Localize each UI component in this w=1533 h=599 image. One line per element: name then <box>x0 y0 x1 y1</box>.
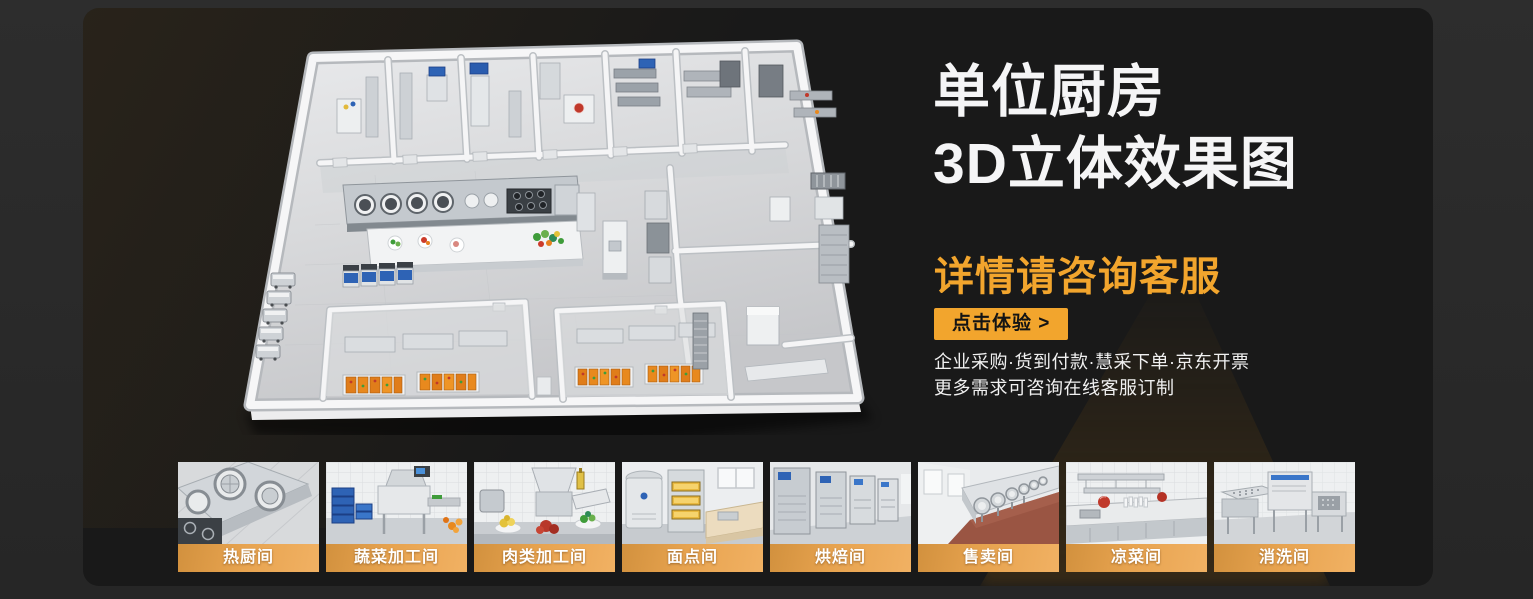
subtitle: 详情请咨询客服 <box>934 244 1221 302</box>
thumbnail-hot-kitchen[interactable]: 热厨间 <box>178 462 319 572</box>
thumbnail-cold-dish-room[interactable]: 凉菜间 <box>1066 462 1207 572</box>
thumb-image-hot-kitchen <box>178 462 319 544</box>
thumbnail-vegetable-processing[interactable]: 蔬菜加工间 <box>326 462 467 572</box>
thumb-image-vegetable-processing <box>326 462 467 544</box>
title-line-1: 单位厨房 <box>933 56 1298 128</box>
thumbnail-label: 蔬菜加工间 <box>326 544 467 572</box>
kitchen-3d-floorplan <box>225 15 885 435</box>
thumbnail-label: 售卖间 <box>918 544 1059 572</box>
cta-button[interactable]: 点击体验 > <box>934 308 1068 340</box>
title-line-2: 3D立体效果图 <box>933 128 1298 200</box>
thumb-image-pastry-room <box>622 462 763 544</box>
thumbnail-label: 凉菜间 <box>1066 544 1207 572</box>
thumb-image-meat-processing <box>474 462 615 544</box>
page-title: 单位厨房 3D立体效果图 <box>933 56 1298 201</box>
banner: 单位厨房 3D立体效果图 详情请咨询客服 点击体验 > 企业采购·货到付款·慧采… <box>0 0 1533 599</box>
thumbnail-label: 面点间 <box>622 544 763 572</box>
feature-line-1: 企业采购·货到付款·慧采下单·京东开票 <box>934 349 1249 375</box>
thumbnail-label: 消洗间 <box>1214 544 1355 572</box>
thumbnail-pastry-room[interactable]: 面点间 <box>622 462 763 572</box>
thumbnail-washing-room[interactable]: 消洗间 <box>1214 462 1355 572</box>
thumbnail-row: 热厨间 蔬菜加工间 <box>178 462 1355 572</box>
thumbnail-meat-processing[interactable]: 肉类加工间 <box>474 462 615 572</box>
bottom-left-room <box>325 304 530 396</box>
feature-text: 企业采购·货到付款·慧采下单·京东开票 更多需求可咨询在线客服订制 <box>934 349 1249 401</box>
feature-line-2: 更多需求可咨询在线客服订制 <box>934 375 1249 401</box>
thumb-image-baking-room <box>770 462 911 544</box>
thumb-image-cold-dish-room <box>1066 462 1207 544</box>
thumbnail-baking-room[interactable]: 烘焙间 <box>770 462 911 572</box>
thumb-image-selling-room <box>918 462 1059 544</box>
thumbnail-label: 肉类加工间 <box>474 544 615 572</box>
thumbnail-label: 热厨间 <box>178 544 319 572</box>
thumb-image-washing-room <box>1214 462 1355 544</box>
thumbnail-selling-room[interactable]: 售卖间 <box>918 462 1059 572</box>
thumbnail-label: 烘焙间 <box>770 544 911 572</box>
